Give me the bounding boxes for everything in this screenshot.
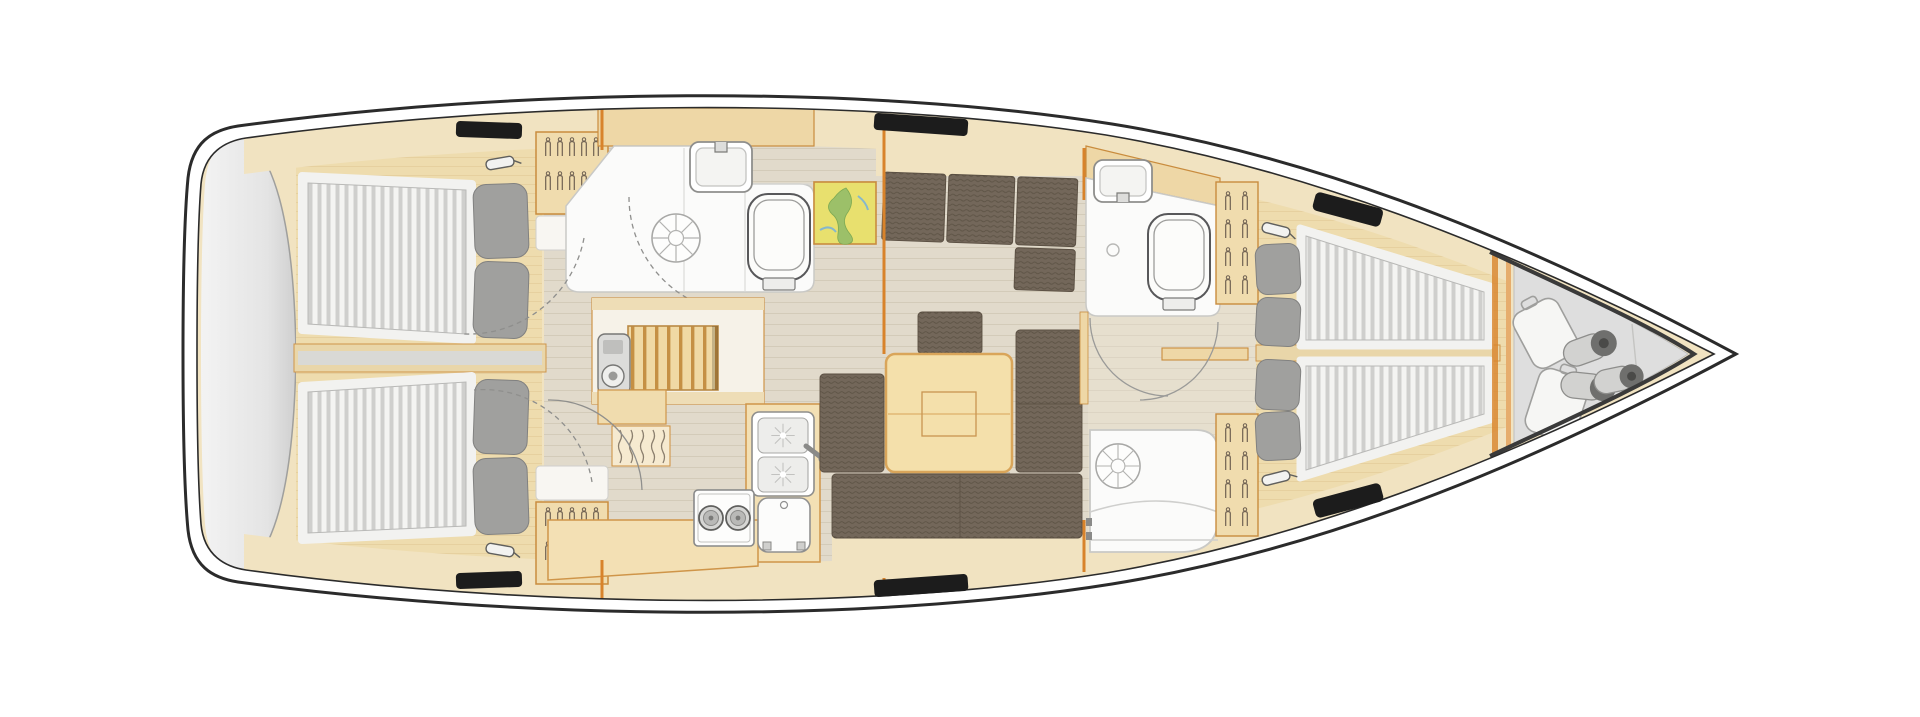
floor-plan	[0, 0, 1920, 717]
hinge-icon	[1086, 518, 1092, 526]
pillow	[1255, 411, 1301, 461]
fridge-icon	[758, 498, 810, 552]
storage-cabinet	[598, 390, 666, 424]
striped-mattress	[308, 382, 466, 533]
shelf-locker	[536, 466, 608, 500]
hanging-locker-forward-top	[1216, 182, 1258, 304]
pillow	[1255, 297, 1301, 347]
door-jamb	[1080, 312, 1088, 404]
chart-table	[814, 182, 876, 244]
deck-hatch-icon	[456, 571, 523, 589]
pillow	[473, 261, 530, 339]
pillow	[473, 183, 530, 259]
shower-drain-icon	[1096, 444, 1140, 488]
toilet-icon	[1148, 214, 1210, 310]
chaise-cushion	[1014, 248, 1075, 292]
washbasin-icon	[690, 142, 752, 192]
stool	[918, 312, 982, 354]
hanging-locker-forward-bottom	[1216, 414, 1258, 536]
aft-centerline-divider	[294, 344, 546, 372]
washbasin-icon	[1094, 160, 1152, 202]
lining-behind-sofa	[876, 128, 1088, 176]
pillow	[1255, 243, 1302, 295]
stove-burner-icon	[699, 506, 723, 530]
shower-drain-icon	[652, 214, 700, 262]
faucet-icon	[1117, 193, 1129, 202]
striped-mattress	[308, 183, 466, 334]
stove	[694, 490, 754, 546]
aft-cabin-starboard	[302, 376, 529, 559]
forward-shower	[1086, 430, 1218, 552]
bottle-rack	[612, 426, 670, 466]
hinge-icon	[1086, 532, 1092, 540]
toilet-icon	[748, 194, 810, 290]
engine-instrument	[598, 334, 630, 394]
stove-burner-icon	[726, 506, 750, 530]
steps-shadow	[712, 326, 718, 390]
dining-table	[886, 354, 1012, 478]
companionway	[592, 298, 764, 404]
pillow	[1255, 359, 1302, 411]
yacht-floor-plan-page	[0, 0, 1920, 717]
deck-hatch-icon	[456, 121, 523, 139]
pillow	[473, 457, 530, 535]
vanity-counter	[598, 108, 814, 146]
frame-top	[592, 298, 764, 310]
entry-steps	[628, 326, 718, 390]
faucet-icon	[715, 142, 727, 152]
partial-wall	[1162, 348, 1248, 360]
